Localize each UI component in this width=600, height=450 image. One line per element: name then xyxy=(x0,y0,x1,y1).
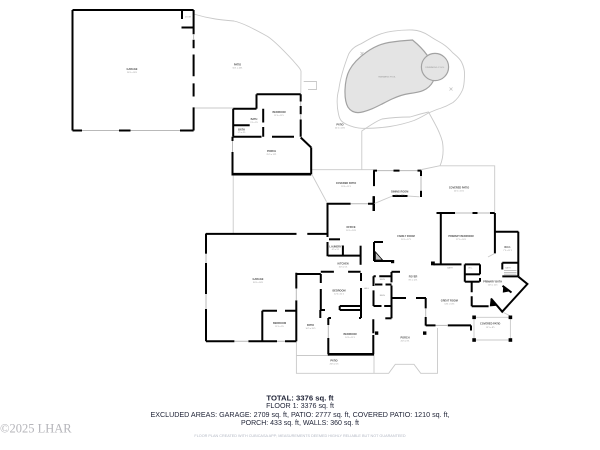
svg-text:HALL: HALL xyxy=(364,287,370,290)
svg-text:11'9 x 11'5: 11'9 x 11'5 xyxy=(274,115,284,117)
svg-text:W.I.C.: W.I.C. xyxy=(504,246,511,249)
svg-text:13'1 x 8'5: 13'1 x 8'5 xyxy=(486,327,496,329)
svg-text:DOOR: DOOR xyxy=(185,17,192,19)
svg-text:17'5 x 16'5: 17'5 x 16'5 xyxy=(456,239,467,241)
svg-text:PRIMARY BEDROOM: PRIMARY BEDROOM xyxy=(448,235,473,238)
svg-text:BATH: BATH xyxy=(447,267,453,270)
svg-text:EXCLUDED AREAS: GARAGE: 2709 s: EXCLUDED AREAS: GARAGE: 2709 sq. ft, PAT… xyxy=(150,411,449,419)
svg-text:FAMILY ROOM: FAMILY ROOM xyxy=(397,235,414,238)
svg-text:20'1 x 17'5: 20'1 x 17'5 xyxy=(401,239,412,241)
svg-text:24'5 x 15'5: 24'5 x 15'5 xyxy=(454,190,465,192)
svg-text:SWIMMING POOL: SWIMMING POOL xyxy=(425,67,445,69)
svg-text:PRIMARY BATH: PRIMARY BATH xyxy=(483,280,502,283)
svg-text:50'1 x 44'1: 50'1 x 44'1 xyxy=(233,68,244,70)
svg-text:COVERED PATIO: COVERED PATIO xyxy=(336,182,356,185)
svg-text:GARAGE: GARAGE xyxy=(127,68,138,71)
svg-text:8'5 x 12'1: 8'5 x 12'1 xyxy=(409,280,419,282)
svg-text:10'1 x 10'5: 10'1 x 10'5 xyxy=(346,230,357,232)
svg-text:BATH: BATH xyxy=(380,294,386,297)
svg-text:PORCH: 433 sq. ft, WALLS: 360: PORCH: 433 sq. ft, WALLS: 360 sq. ft xyxy=(241,420,359,427)
svg-text:FLOOR PLAN CREATED WITH CUBICA: FLOOR PLAN CREATED WITH CUBICASA APP; ME… xyxy=(194,434,405,438)
svg-text:SWIMMING POOL: SWIMMING POOL xyxy=(378,77,396,79)
svg-text:BEDROOM: BEDROOM xyxy=(343,333,356,336)
svg-text:©2025 LHAR: ©2025 LHAR xyxy=(0,422,72,436)
svg-text:20'5 x 8'1: 20'5 x 8'1 xyxy=(401,341,411,343)
svg-text:GREAT ROOM: GREAT ROOM xyxy=(441,300,458,303)
svg-text:12'5 x 11'1: 12'5 x 11'1 xyxy=(488,284,499,286)
svg-text:BATH: BATH xyxy=(238,128,245,131)
svg-text:12'5 x 11'1: 12'5 x 11'1 xyxy=(334,294,345,296)
svg-text:26'5 x 26'5: 26'5 x 26'5 xyxy=(127,72,138,74)
svg-text:FOYER: FOYER xyxy=(409,276,418,279)
svg-text:10'5 x 20'5: 10'5 x 20'5 xyxy=(306,328,317,330)
svg-text:30'5 x 34'5: 30'5 x 34'5 xyxy=(253,282,264,284)
svg-text:PATIO: PATIO xyxy=(234,64,241,67)
svg-text:BATH: BATH xyxy=(505,267,511,270)
svg-text:5'5 x 4'5: 5'5 x 4'5 xyxy=(238,132,246,134)
svg-text:PATIO: PATIO xyxy=(307,324,314,327)
svg-text:COVERED PATIO: COVERED PATIO xyxy=(480,323,500,326)
svg-text:BATH: BATH xyxy=(380,278,386,281)
svg-text:BEDROOM: BEDROOM xyxy=(272,111,285,114)
svg-text:15'5 x 10'5: 15'5 x 10'5 xyxy=(395,194,406,196)
svg-text:PATIO: PATIO xyxy=(330,360,337,363)
svg-text:20'5 x 11'5: 20'5 x 11'5 xyxy=(341,186,352,188)
svg-text:PORCH: PORCH xyxy=(400,337,409,340)
svg-text:9'1 x 5'5: 9'1 x 5'5 xyxy=(250,122,258,124)
svg-text:BATH: BATH xyxy=(251,118,258,121)
svg-text:BEDROOM: BEDROOM xyxy=(332,290,345,293)
svg-text:GARAGE: GARAGE xyxy=(253,278,264,281)
svg-text:26'5 x 6'5: 26'5 x 6'5 xyxy=(330,364,340,366)
svg-text:24'1 x 20'5: 24'1 x 20'5 xyxy=(335,128,346,130)
svg-text:14'5 x 13'5: 14'5 x 13'5 xyxy=(444,304,455,306)
svg-text:6'5 x 5'1: 6'5 x 5'1 xyxy=(332,249,340,251)
svg-text:BEDROOM: BEDROOM xyxy=(273,322,286,325)
svg-text:DINING ROOM: DINING ROOM xyxy=(391,190,408,193)
svg-text:LAUNDRY: LAUNDRY xyxy=(329,246,341,249)
svg-text:PORCH: PORCH xyxy=(267,150,276,153)
svg-text:OFFICE: OFFICE xyxy=(346,226,355,229)
svg-text:PATIO: PATIO xyxy=(336,124,343,127)
svg-text:W.C.: W.C. xyxy=(468,268,473,270)
svg-text:KITCHEN: KITCHEN xyxy=(337,263,348,266)
svg-text:7'5 x 11'1: 7'5 x 11'1 xyxy=(503,250,512,252)
svg-text:14'1 x 11'5: 14'1 x 11'5 xyxy=(345,337,356,339)
svg-text:25'5 x 12'1: 25'5 x 12'1 xyxy=(267,154,278,156)
svg-text:10'5 x 5'1: 10'5 x 5'1 xyxy=(339,266,349,268)
svg-text:FLOOR 1: 3376 sq. ft: FLOOR 1: 3376 sq. ft xyxy=(266,402,334,410)
svg-text:COVERED PATIO: COVERED PATIO xyxy=(449,186,469,189)
svg-text:11'5 x 9'5: 11'5 x 9'5 xyxy=(275,326,284,328)
